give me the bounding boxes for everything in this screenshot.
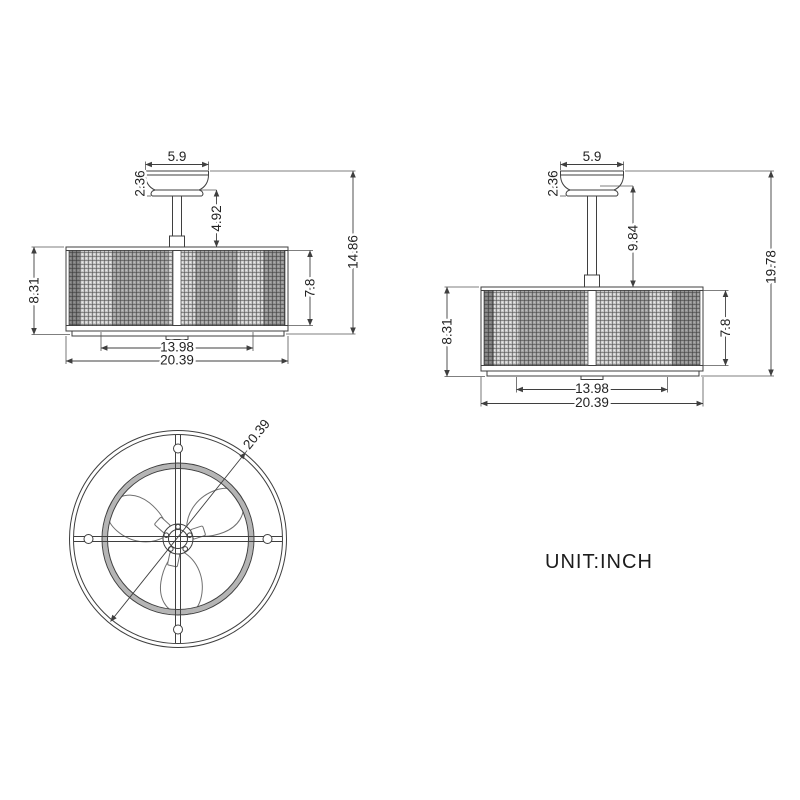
dim-canopy-width: 5.9	[146, 149, 209, 170]
dim-cage-height: 8.31	[27, 247, 71, 335]
technical-drawing: 5.9 2.36 4.92 14.86 8.31	[0, 0, 800, 800]
dim-label-downrod-length: 9.84	[626, 224, 641, 251]
cage-bottom-cap	[581, 376, 603, 380]
downrod	[170, 196, 185, 247]
canopy	[146, 171, 615, 196]
dim-drum-height: 7.8	[703, 291, 733, 366]
dim-label-cage-height: 8.31	[440, 318, 455, 344]
canopy	[561, 171, 624, 196]
dim-downrod-length: 4.92	[198, 190, 224, 247]
dim-downrod-length: 9.84	[600, 186, 641, 287]
dim-label-cage-height: 8.31	[27, 277, 42, 303]
dim-label-canopy-height: 2.36	[133, 170, 148, 196]
bottom-view: 20.39	[70, 416, 287, 647]
dim-drum-height: 7.8	[288, 251, 318, 326]
dim-label-overall-height: 14.86	[346, 235, 361, 269]
cage-bottom-lip	[487, 371, 699, 376]
dim-label-overall-height: 19.78	[764, 250, 779, 284]
drawing-sheet: 5.9 2.36 4.92 14.86 8.31	[0, 0, 800, 800]
downrod	[585, 196, 600, 287]
unit-label: UNIT:INCH	[545, 551, 653, 573]
dim-label-canopy-height: 2.36	[546, 170, 561, 196]
dim-cage-height: 8.31	[440, 287, 486, 377]
dim-label-canopy-width: 5.9	[583, 149, 602, 164]
dim-label-downrod-length: 4.92	[209, 205, 224, 231]
dim-label-overall-width: 20.39	[575, 395, 609, 410]
dim-label-inner-width: 13.98	[575, 381, 609, 396]
dim-label-canopy-width: 5.9	[168, 149, 187, 164]
side-view-long-downrod: 5.9 2.36 9.84 19.78 8.31	[440, 149, 779, 410]
dim-label-overall-width: 20.39	[160, 353, 194, 368]
dim-label-diameter: 20.39	[240, 416, 273, 452]
fan-cage	[66, 247, 288, 340]
dim-label-drum-height: 7.8	[303, 279, 318, 298]
cage-bottom-lip	[72, 331, 284, 336]
fan-cage	[481, 287, 703, 380]
dim-label-drum-height: 7.8	[718, 319, 733, 338]
dim-canopy-width: 5.9	[561, 149, 624, 170]
